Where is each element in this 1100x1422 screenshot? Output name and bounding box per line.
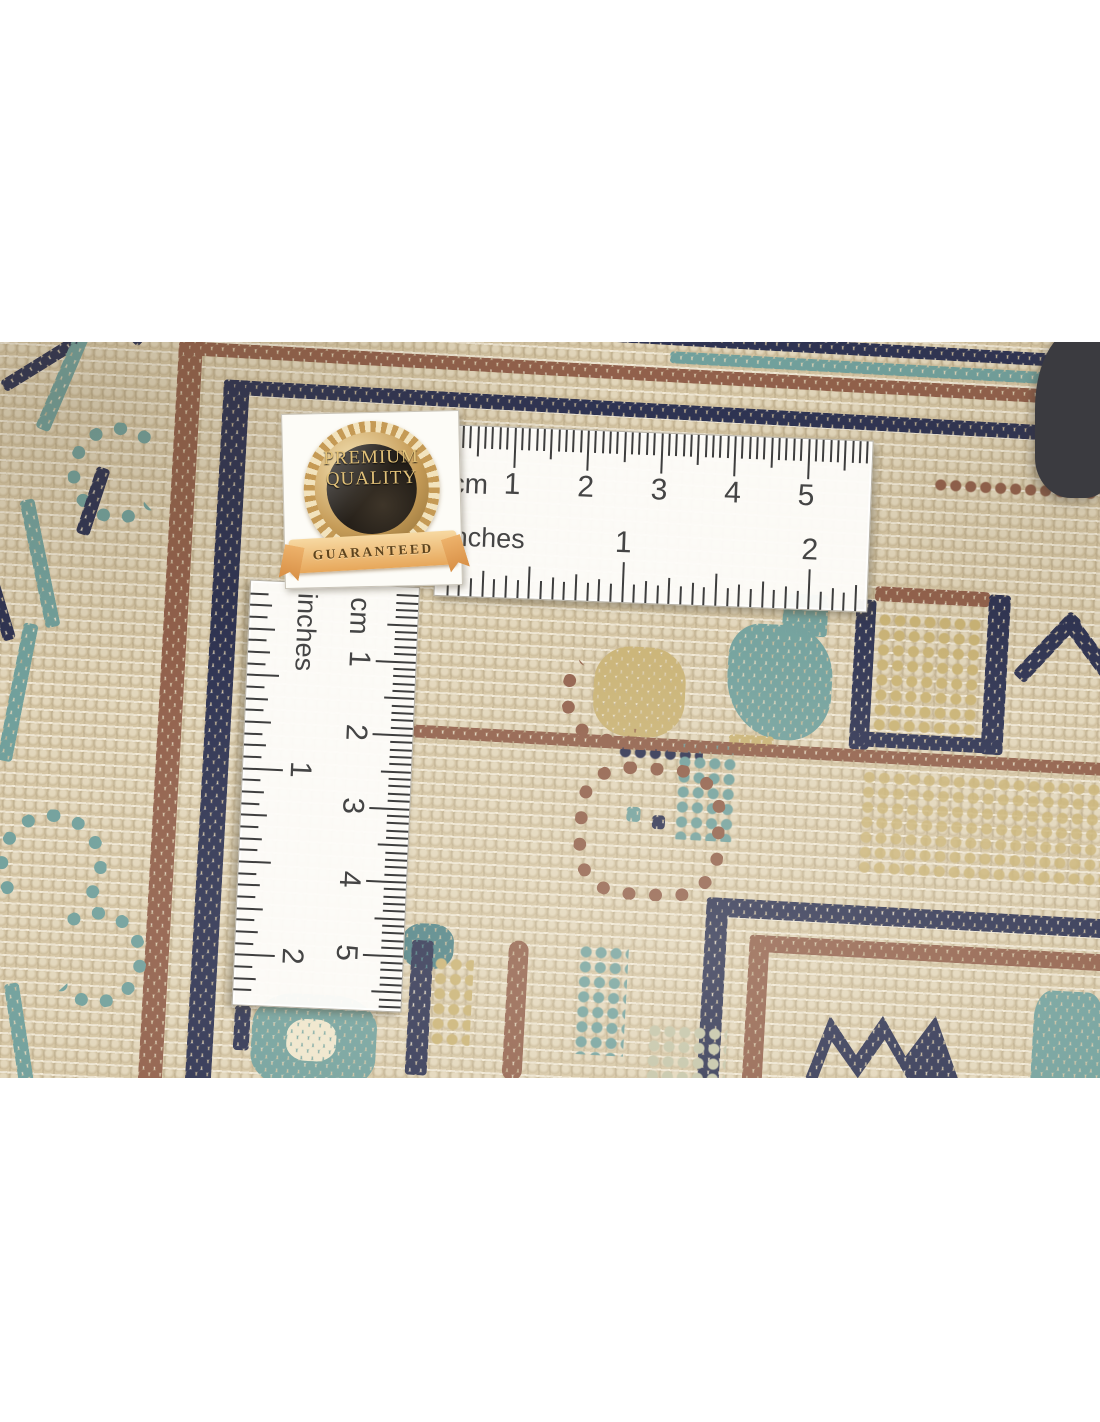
ruler-tick xyxy=(551,577,554,599)
ruler-tick xyxy=(807,439,811,479)
ruler-tick xyxy=(243,755,261,758)
carpet-motif-cluster-gold-fill xyxy=(871,612,983,743)
carpet-motif-flower-center-teal xyxy=(626,806,641,822)
ruler-tick xyxy=(469,426,472,448)
ruler-tick xyxy=(866,441,869,463)
ruler-tick xyxy=(633,585,636,603)
ruler-tick xyxy=(243,767,283,771)
ruler-tick xyxy=(378,844,408,847)
badge-title: PREMIUM QUALITY xyxy=(303,445,440,490)
ruler-tick xyxy=(733,436,737,476)
ruler-tick xyxy=(712,435,715,457)
ruler-tick xyxy=(550,429,553,459)
ruler-tick xyxy=(481,571,484,597)
ruler-cm-number: 3 xyxy=(337,797,368,815)
carpet-motif-navy-accent xyxy=(0,581,16,642)
ruler-tick xyxy=(623,432,626,462)
ruler-tick xyxy=(379,1006,401,1009)
ruler-tick xyxy=(477,426,480,456)
ruler-tick xyxy=(240,837,262,840)
ruler-tick xyxy=(796,591,799,609)
ruler-tick xyxy=(851,441,854,463)
ruler-tick xyxy=(462,426,465,448)
ruler-tick xyxy=(233,989,251,992)
ruler-tick xyxy=(621,562,625,602)
ruler-tick xyxy=(521,428,524,450)
ruler-tick xyxy=(387,822,409,825)
ruler-tick xyxy=(580,430,583,452)
ruler-tick xyxy=(843,593,846,611)
carpet-motif-teal-scroll xyxy=(0,806,110,923)
ruler-tick xyxy=(384,697,414,700)
ruler-tick xyxy=(385,851,407,854)
carpet-motif-navy-zigzag-bottom xyxy=(805,1009,964,1078)
ruler-tick xyxy=(369,807,409,811)
ruler-tick xyxy=(770,438,773,468)
ruler-tick xyxy=(381,770,411,773)
ruler-tick xyxy=(793,439,796,461)
ruler-tick xyxy=(245,721,271,724)
ruler-tick xyxy=(386,837,408,840)
carpet-motif-cluster-navy-bar xyxy=(980,594,1011,755)
ruler-tick xyxy=(247,662,265,665)
badge-ribbon-text: GUARANTEED xyxy=(312,541,434,564)
ruler-tick xyxy=(660,434,664,474)
ruler-tick xyxy=(697,435,700,465)
ruler-tick xyxy=(384,888,406,891)
ruler-tick xyxy=(393,675,415,678)
badge-ribbon: GUARANTEED xyxy=(288,530,458,574)
ruler-tick xyxy=(397,594,419,597)
cm-label: cm xyxy=(345,597,375,636)
ruler-tick xyxy=(574,574,577,600)
ruler-tick xyxy=(543,429,546,451)
carpet-motif-brown-flower xyxy=(571,759,728,905)
ruler-tick xyxy=(395,638,417,641)
ruler-tick xyxy=(563,582,566,600)
ruler-tick xyxy=(558,430,561,452)
ruler-tick xyxy=(656,585,659,603)
ruler-cm-number: 2 xyxy=(340,723,371,741)
ruler-tick xyxy=(391,712,413,715)
ruler-tick xyxy=(844,441,847,471)
ruler-tick xyxy=(668,578,671,604)
ruler-tick xyxy=(249,627,275,630)
ruler-tick xyxy=(376,660,416,664)
ruler-tick xyxy=(391,727,413,730)
ruler-tick xyxy=(829,440,832,462)
ruler-tick xyxy=(837,440,840,462)
ruler-tick xyxy=(386,829,408,832)
ruler-tick xyxy=(726,588,729,606)
carpet-motif-navy-zigzag xyxy=(1062,615,1100,689)
ruler-tick xyxy=(644,581,647,603)
ruler-tick xyxy=(691,583,694,605)
ruler-tick xyxy=(668,434,671,456)
ruler-tick xyxy=(528,567,531,599)
ruler-tick xyxy=(392,690,414,693)
ruler-tick xyxy=(385,866,407,869)
ruler-tick xyxy=(390,756,412,759)
ruler-tick xyxy=(631,432,634,454)
carpet-motif-gold-leaf xyxy=(591,644,688,739)
ruler-tick xyxy=(586,583,589,601)
ruler-tick xyxy=(504,576,507,598)
badge-title-line2: QUALITY xyxy=(303,466,439,490)
ruler-tick xyxy=(819,592,822,610)
rug-closeup-photo: cm inches 1234512 cm inches 1234512 PREM… xyxy=(0,342,1100,1078)
ruler-tick xyxy=(241,802,259,805)
ruler-tick xyxy=(609,584,612,602)
ruler-tick xyxy=(387,815,409,818)
dark-object xyxy=(1035,342,1100,498)
ruler-tick xyxy=(749,437,752,459)
ruler-tick xyxy=(565,430,568,452)
ruler-tick xyxy=(382,939,404,942)
ruler-tick xyxy=(756,437,759,459)
ruler-tick xyxy=(638,433,641,455)
ruler-tick xyxy=(396,609,418,612)
ruler-tick xyxy=(366,880,406,884)
carpet-motif-teal-vine xyxy=(19,498,60,628)
ruler-cm-number: 4 xyxy=(724,478,742,509)
ruler-cm-number: 1 xyxy=(503,470,521,501)
ruler-tick xyxy=(859,441,862,463)
ruler-tick xyxy=(248,651,270,654)
ruler-tick xyxy=(831,588,834,610)
ruler-tick xyxy=(815,439,818,461)
ruler-tick xyxy=(719,436,722,458)
ruler-tick xyxy=(499,427,502,449)
ruler-tick xyxy=(388,800,410,803)
ruler-tick xyxy=(250,616,268,619)
carpet-motif-sage-bits xyxy=(645,1023,728,1078)
carpet-motif-brown-wave xyxy=(501,940,529,1078)
ruler-tick xyxy=(245,709,263,712)
ruler-tick xyxy=(396,616,418,619)
ruler-tick xyxy=(714,574,717,606)
ruler-tick xyxy=(506,428,509,450)
ruler-tick xyxy=(382,932,404,935)
ruler-tick xyxy=(539,581,542,599)
ruler-tick xyxy=(808,569,812,609)
ruler-tick xyxy=(749,589,752,607)
ruler-tick xyxy=(236,919,254,922)
ruler-tick xyxy=(389,763,411,766)
ruler-tick xyxy=(234,965,252,968)
carpet-motif-teal-scroll xyxy=(43,904,149,1010)
ruler-tick xyxy=(247,674,279,677)
ruler-tick xyxy=(237,907,263,910)
ruler-tick xyxy=(738,585,741,607)
ruler-tick xyxy=(705,435,708,457)
ruler-tick xyxy=(235,942,253,945)
ruler-tick xyxy=(239,860,271,863)
ruler-tick xyxy=(242,779,260,782)
ruler-tick xyxy=(390,749,412,752)
carpet-motif-flower-center-navy xyxy=(652,815,666,830)
ruler-tick xyxy=(602,431,605,453)
ruler-tick xyxy=(778,438,781,460)
ruler-tick xyxy=(244,732,262,735)
ruler-tick xyxy=(675,434,678,456)
ruler-tick xyxy=(784,586,787,608)
ruler-tick xyxy=(390,741,412,744)
ruler-cm-number: 5 xyxy=(797,481,815,512)
premium-quality-badge: PREMIUM QUALITY GUARANTEED xyxy=(281,410,463,589)
badge-title-line1: PREMIUM xyxy=(303,445,439,469)
ruler-tick xyxy=(528,428,531,450)
ruler-tick xyxy=(244,744,266,747)
ruler-tick xyxy=(393,682,415,685)
ruler-tick xyxy=(234,977,256,980)
ruler-tick xyxy=(484,427,487,449)
ruler-tick xyxy=(469,578,472,596)
ruler-tick xyxy=(374,917,404,920)
ruler-tick xyxy=(363,953,403,957)
ruler-tick xyxy=(246,686,264,689)
carpet-motif-gold-field xyxy=(856,770,1100,889)
ruler-tick xyxy=(238,872,256,875)
ruler-tick xyxy=(246,697,268,700)
ruler-tick xyxy=(380,976,402,979)
product-photo-page: cm inches 1234512 cm inches 1234512 PREM… xyxy=(0,0,1100,1422)
ruler-inch-number: 2 xyxy=(801,535,819,566)
ruler-tick xyxy=(383,910,405,913)
ruler-tick xyxy=(396,602,418,605)
ruler-tick xyxy=(381,961,403,964)
carpet-motif-gold-column xyxy=(429,956,474,1048)
ruler-tick xyxy=(250,604,272,607)
ruler-tick xyxy=(251,592,269,595)
ruler-tick xyxy=(392,704,414,707)
ruler-tick xyxy=(763,437,766,459)
ruler-tick xyxy=(822,440,825,462)
ruler-tick xyxy=(598,579,601,601)
carpet-motif-teal-dots xyxy=(573,944,629,1057)
ruler-tick xyxy=(384,873,406,876)
carpet-motif-navy-chain xyxy=(28,342,147,347)
carpet-motif-teal-scroll xyxy=(65,420,171,526)
ruler-tick xyxy=(380,984,402,987)
ruler-tick xyxy=(238,884,260,887)
ruler-tick xyxy=(492,427,495,449)
carpet-inner-frame-brown-v xyxy=(738,935,770,1078)
ruler-tick xyxy=(371,991,401,994)
ruler-tick xyxy=(773,590,776,608)
ruler-tick xyxy=(383,903,405,906)
ruler-tick xyxy=(379,998,401,1001)
ruler-tick xyxy=(572,430,575,452)
ruler-tick xyxy=(387,623,417,626)
ruler-horizontal: cm inches 1234512 xyxy=(433,424,873,613)
ruler-tick xyxy=(690,435,693,457)
ruler-tick xyxy=(395,631,417,634)
ruler-tick xyxy=(389,778,411,781)
ruler-cm-number: 5 xyxy=(331,944,362,962)
ruler-tick xyxy=(785,438,788,460)
carpet-motif-teal-vine xyxy=(0,622,39,762)
ruler-cm-number: 3 xyxy=(650,475,668,506)
ruler-tick xyxy=(381,947,403,950)
ruler-tick xyxy=(516,580,519,598)
ruler-tick xyxy=(741,437,744,459)
carpet-motif-cluster-brown-row xyxy=(875,586,991,607)
inches-label: inches xyxy=(290,592,320,671)
ruler-tick xyxy=(391,719,413,722)
ruler-tick xyxy=(653,433,656,455)
ruler-tick xyxy=(800,439,803,461)
ruler-tick xyxy=(536,429,539,451)
ruler-tick xyxy=(382,925,404,928)
ruler-tick xyxy=(388,793,410,796)
ruler-tick xyxy=(646,433,649,455)
ruler-inch-number: 2 xyxy=(276,947,307,965)
ruler-tick xyxy=(242,790,264,793)
ruler-tick xyxy=(394,653,416,656)
ruler-tick xyxy=(385,859,407,862)
ruler-tick xyxy=(393,668,415,671)
ruler-tick xyxy=(493,579,496,597)
ruler-tick xyxy=(682,434,685,456)
ruler-tick xyxy=(241,814,267,817)
ruler-cm-number: 2 xyxy=(577,472,595,503)
ruler-tick xyxy=(394,646,416,649)
ruler-cm-number: 4 xyxy=(334,870,365,888)
ruler-tick xyxy=(240,825,258,828)
carpet-inner-frame-brown-h xyxy=(749,935,1100,975)
ruler-tick xyxy=(383,895,405,898)
ruler-tick xyxy=(727,436,730,458)
ruler-tick xyxy=(616,432,619,454)
ruler-tick xyxy=(236,930,258,933)
carpet-motif-navy-accent xyxy=(233,1005,251,1051)
ruler-inch-number: 1 xyxy=(614,528,632,559)
carpet-motif-teal-leaf xyxy=(724,622,835,743)
ruler-tick xyxy=(854,585,857,611)
ruler-vertical: cm inches 1234512 xyxy=(232,580,420,1013)
ruler-tick xyxy=(372,733,412,737)
ruler-tick xyxy=(239,849,257,852)
ruler-tick xyxy=(388,785,410,788)
ruler-cm-number: 1 xyxy=(343,650,374,668)
ruler-tick xyxy=(679,586,682,604)
ruler-tick xyxy=(513,428,517,468)
ruler-tick xyxy=(594,431,597,453)
ruler-tick xyxy=(761,581,764,607)
ruler-tick xyxy=(586,431,590,471)
carpet-motif-teal-patch xyxy=(1029,990,1100,1078)
badge-medallion: PREMIUM QUALITY GUARANTEED xyxy=(302,419,441,558)
ruler-tick xyxy=(235,954,275,958)
ruler-tick xyxy=(248,639,266,642)
ruler-tick xyxy=(609,432,612,454)
ruler-tick xyxy=(703,587,706,605)
ruler-tick xyxy=(237,895,255,898)
ruler-inch-number: 1 xyxy=(285,761,316,779)
carpet-motif-teal-vine xyxy=(4,982,34,1078)
carpet-motif-leaf-center xyxy=(285,1018,337,1063)
ruler-tick xyxy=(380,969,402,972)
